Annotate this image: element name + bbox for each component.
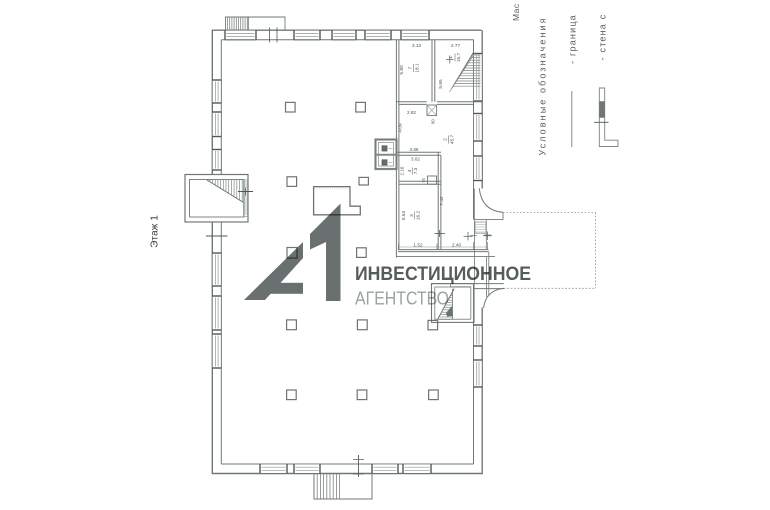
- svg-text:3.12: 3.12: [412, 43, 422, 49]
- svg-text:4.09: 4.09: [398, 123, 404, 133]
- svg-text:3.62: 3.62: [411, 157, 420, 162]
- svg-text:80: 80: [431, 119, 436, 124]
- svg-text:- стена с: - стена с: [598, 14, 608, 61]
- svg-text:4: 4: [407, 169, 412, 172]
- svg-text:75: 75: [421, 178, 426, 183]
- svg-text:2.77: 2.77: [451, 43, 461, 49]
- svg-text:1.52: 1.52: [413, 242, 423, 248]
- svg-text:2.40: 2.40: [452, 242, 462, 248]
- svg-text:Этаж 1: Этаж 1: [150, 215, 161, 248]
- svg-text:1: 1: [448, 56, 453, 59]
- svg-text:3.89: 3.89: [410, 147, 419, 152]
- svg-text:16.2: 16.2: [416, 211, 422, 221]
- svg-text:2.16: 2.16: [400, 166, 405, 175]
- svg-text:Условные обозначения: Условные обозначения: [538, 16, 548, 155]
- svg-text:5.65: 5.65: [438, 79, 444, 89]
- svg-text:7.3: 7.3: [413, 167, 418, 174]
- svg-text:АГЕНТСТВО: АГЕНТСТВО: [355, 289, 449, 309]
- svg-text:18.1: 18.1: [415, 63, 421, 73]
- svg-text:7: 7: [408, 66, 414, 69]
- svg-text:- граница: - граница: [568, 14, 578, 64]
- svg-text:45.7: 45.7: [450, 135, 456, 145]
- svg-text:2.82: 2.82: [407, 110, 416, 115]
- svg-text:3: 3: [409, 214, 415, 217]
- svg-text:5.80: 5.80: [399, 65, 405, 75]
- svg-text:Мас: Мас: [511, 3, 521, 21]
- svg-text:7.42: 7.42: [439, 196, 445, 206]
- svg-text:2: 2: [443, 138, 449, 141]
- svg-text:ИНВЕСТИЦИОННОЕ: ИНВЕСТИЦИОННОЕ: [355, 263, 531, 285]
- svg-text:5.63: 5.63: [401, 211, 407, 221]
- svg-text:15.7: 15.7: [456, 53, 462, 63]
